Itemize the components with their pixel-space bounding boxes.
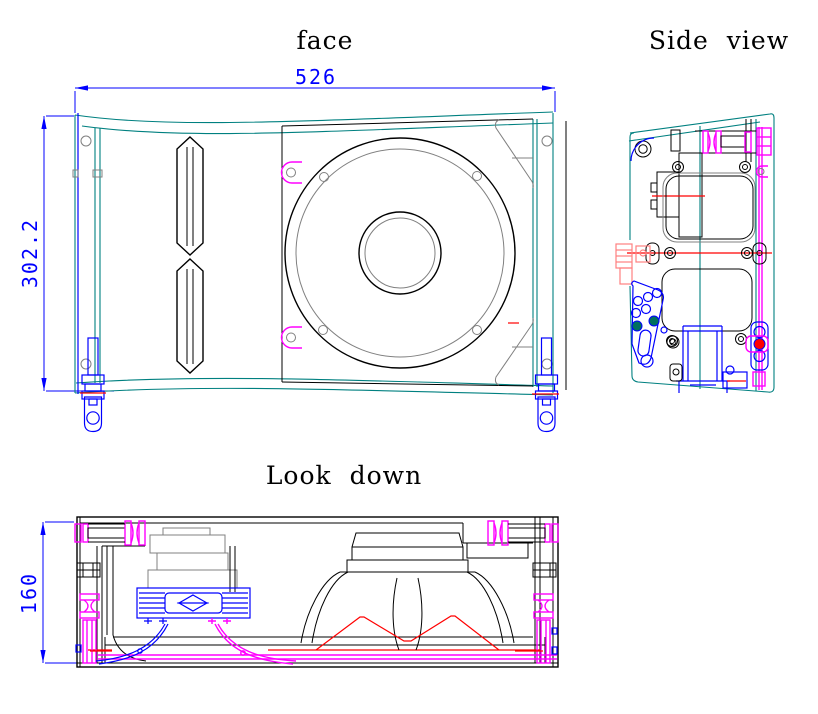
connector-panel bbox=[616, 244, 650, 284]
face-cabinet-outline bbox=[73, 112, 566, 395]
face-view: 526 302.2 bbox=[18, 65, 566, 432]
right-front-clamp bbox=[534, 594, 553, 663]
top-view-title: Look down bbox=[266, 461, 422, 490]
cad-drawing-canvas: face Side view Look down 526 302.2 bbox=[0, 0, 818, 714]
left-front-clamp bbox=[80, 594, 99, 663]
view-titles: face Side view Look down bbox=[266, 26, 789, 490]
side-rigging-plate bbox=[632, 281, 680, 367]
side-view bbox=[616, 114, 774, 393]
side-view-title: Side view bbox=[649, 26, 789, 55]
woofer-dust-cap bbox=[359, 212, 441, 294]
dim-height-value: 302.2 bbox=[18, 218, 42, 288]
hf-horn-stack bbox=[148, 528, 237, 592]
driver-section-hatched bbox=[651, 153, 705, 237]
dim-depth-value: 160 bbox=[17, 572, 41, 614]
wiring bbox=[96, 624, 296, 664]
port-slots bbox=[177, 137, 203, 373]
face-view-title: face bbox=[297, 26, 354, 55]
right-side-handle bbox=[488, 521, 558, 545]
side-panel-recesses bbox=[662, 173, 755, 331]
woofer-section bbox=[301, 533, 514, 650]
crossover-network bbox=[137, 588, 250, 624]
cad-drawing-sheet: face Side view Look down 526 302.2 bbox=[0, 0, 818, 714]
top-view: 160 bbox=[17, 517, 558, 667]
woofer-front bbox=[285, 138, 515, 368]
dim-width-value: 526 bbox=[295, 65, 337, 89]
left-side-handle bbox=[75, 521, 145, 545]
dimension-width: 526 bbox=[75, 65, 555, 113]
side-bottom-hardware bbox=[670, 322, 768, 393]
